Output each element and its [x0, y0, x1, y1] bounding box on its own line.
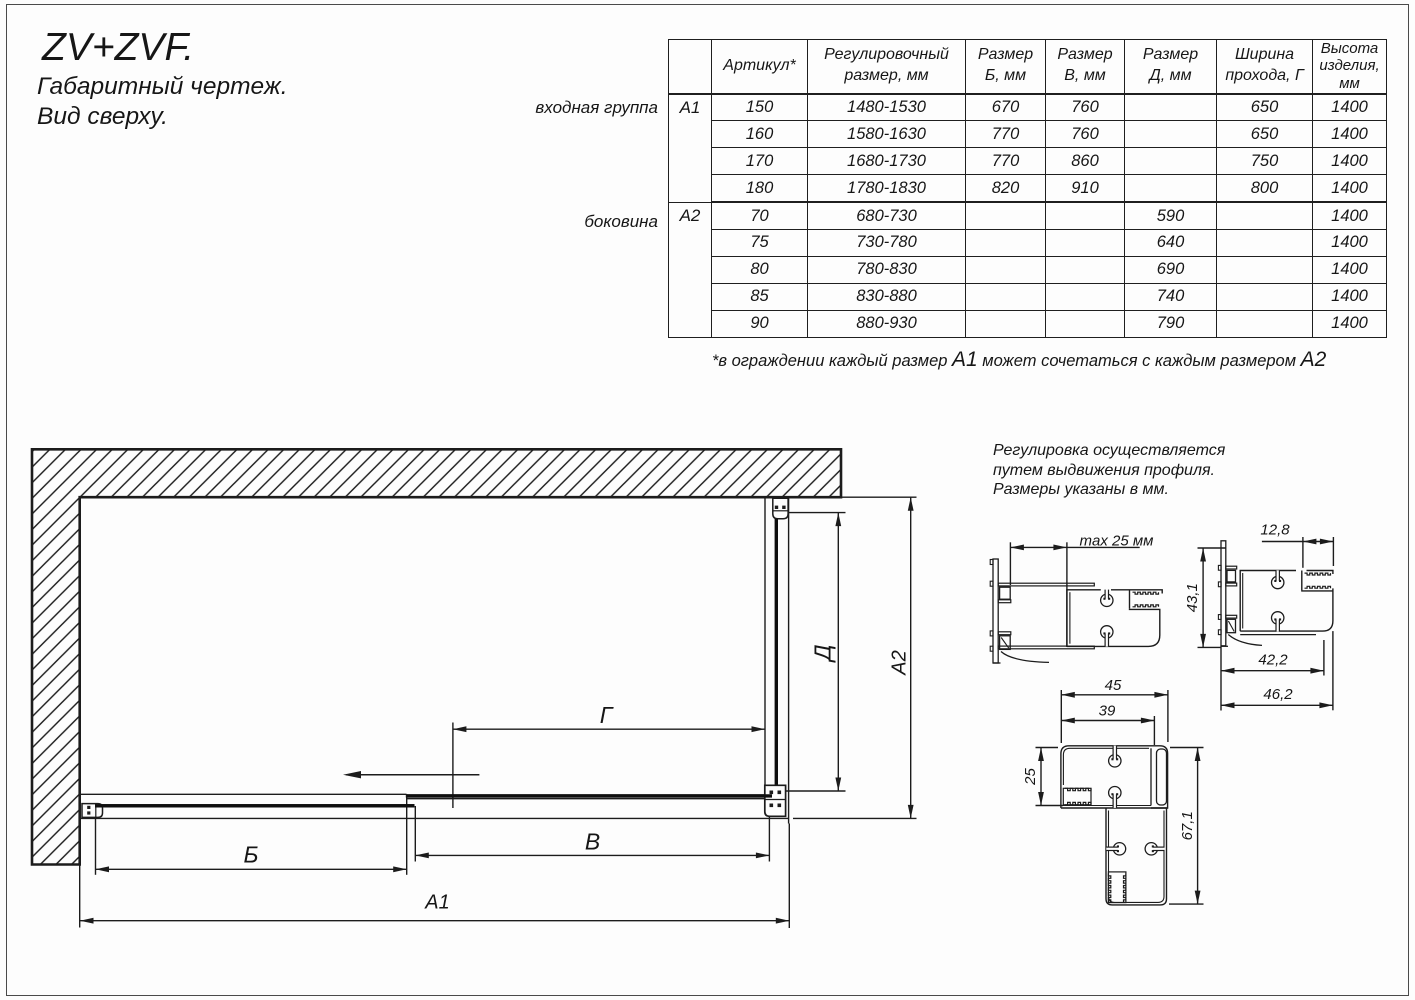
- svg-text:А2: А2: [889, 650, 911, 675]
- svg-text:Д: Д: [810, 644, 836, 663]
- svg-text:45: 45: [1105, 677, 1122, 694]
- svg-text:max 25 мм: max 25 мм: [1080, 533, 1154, 550]
- svg-text:46,2: 46,2: [1263, 686, 1293, 703]
- svg-text:39: 39: [1099, 703, 1116, 720]
- svg-text:А1: А1: [424, 892, 449, 914]
- svg-text:42,2: 42,2: [1258, 652, 1288, 669]
- svg-text:В: В: [585, 829, 600, 855]
- svg-text:67,1: 67,1: [1179, 811, 1196, 840]
- svg-text:12,8: 12,8: [1260, 522, 1290, 539]
- svg-text:Б: Б: [244, 842, 259, 868]
- svg-text:Г: Г: [600, 702, 614, 728]
- svg-text:43,1: 43,1: [1184, 583, 1201, 612]
- svg-text:25: 25: [1022, 768, 1039, 786]
